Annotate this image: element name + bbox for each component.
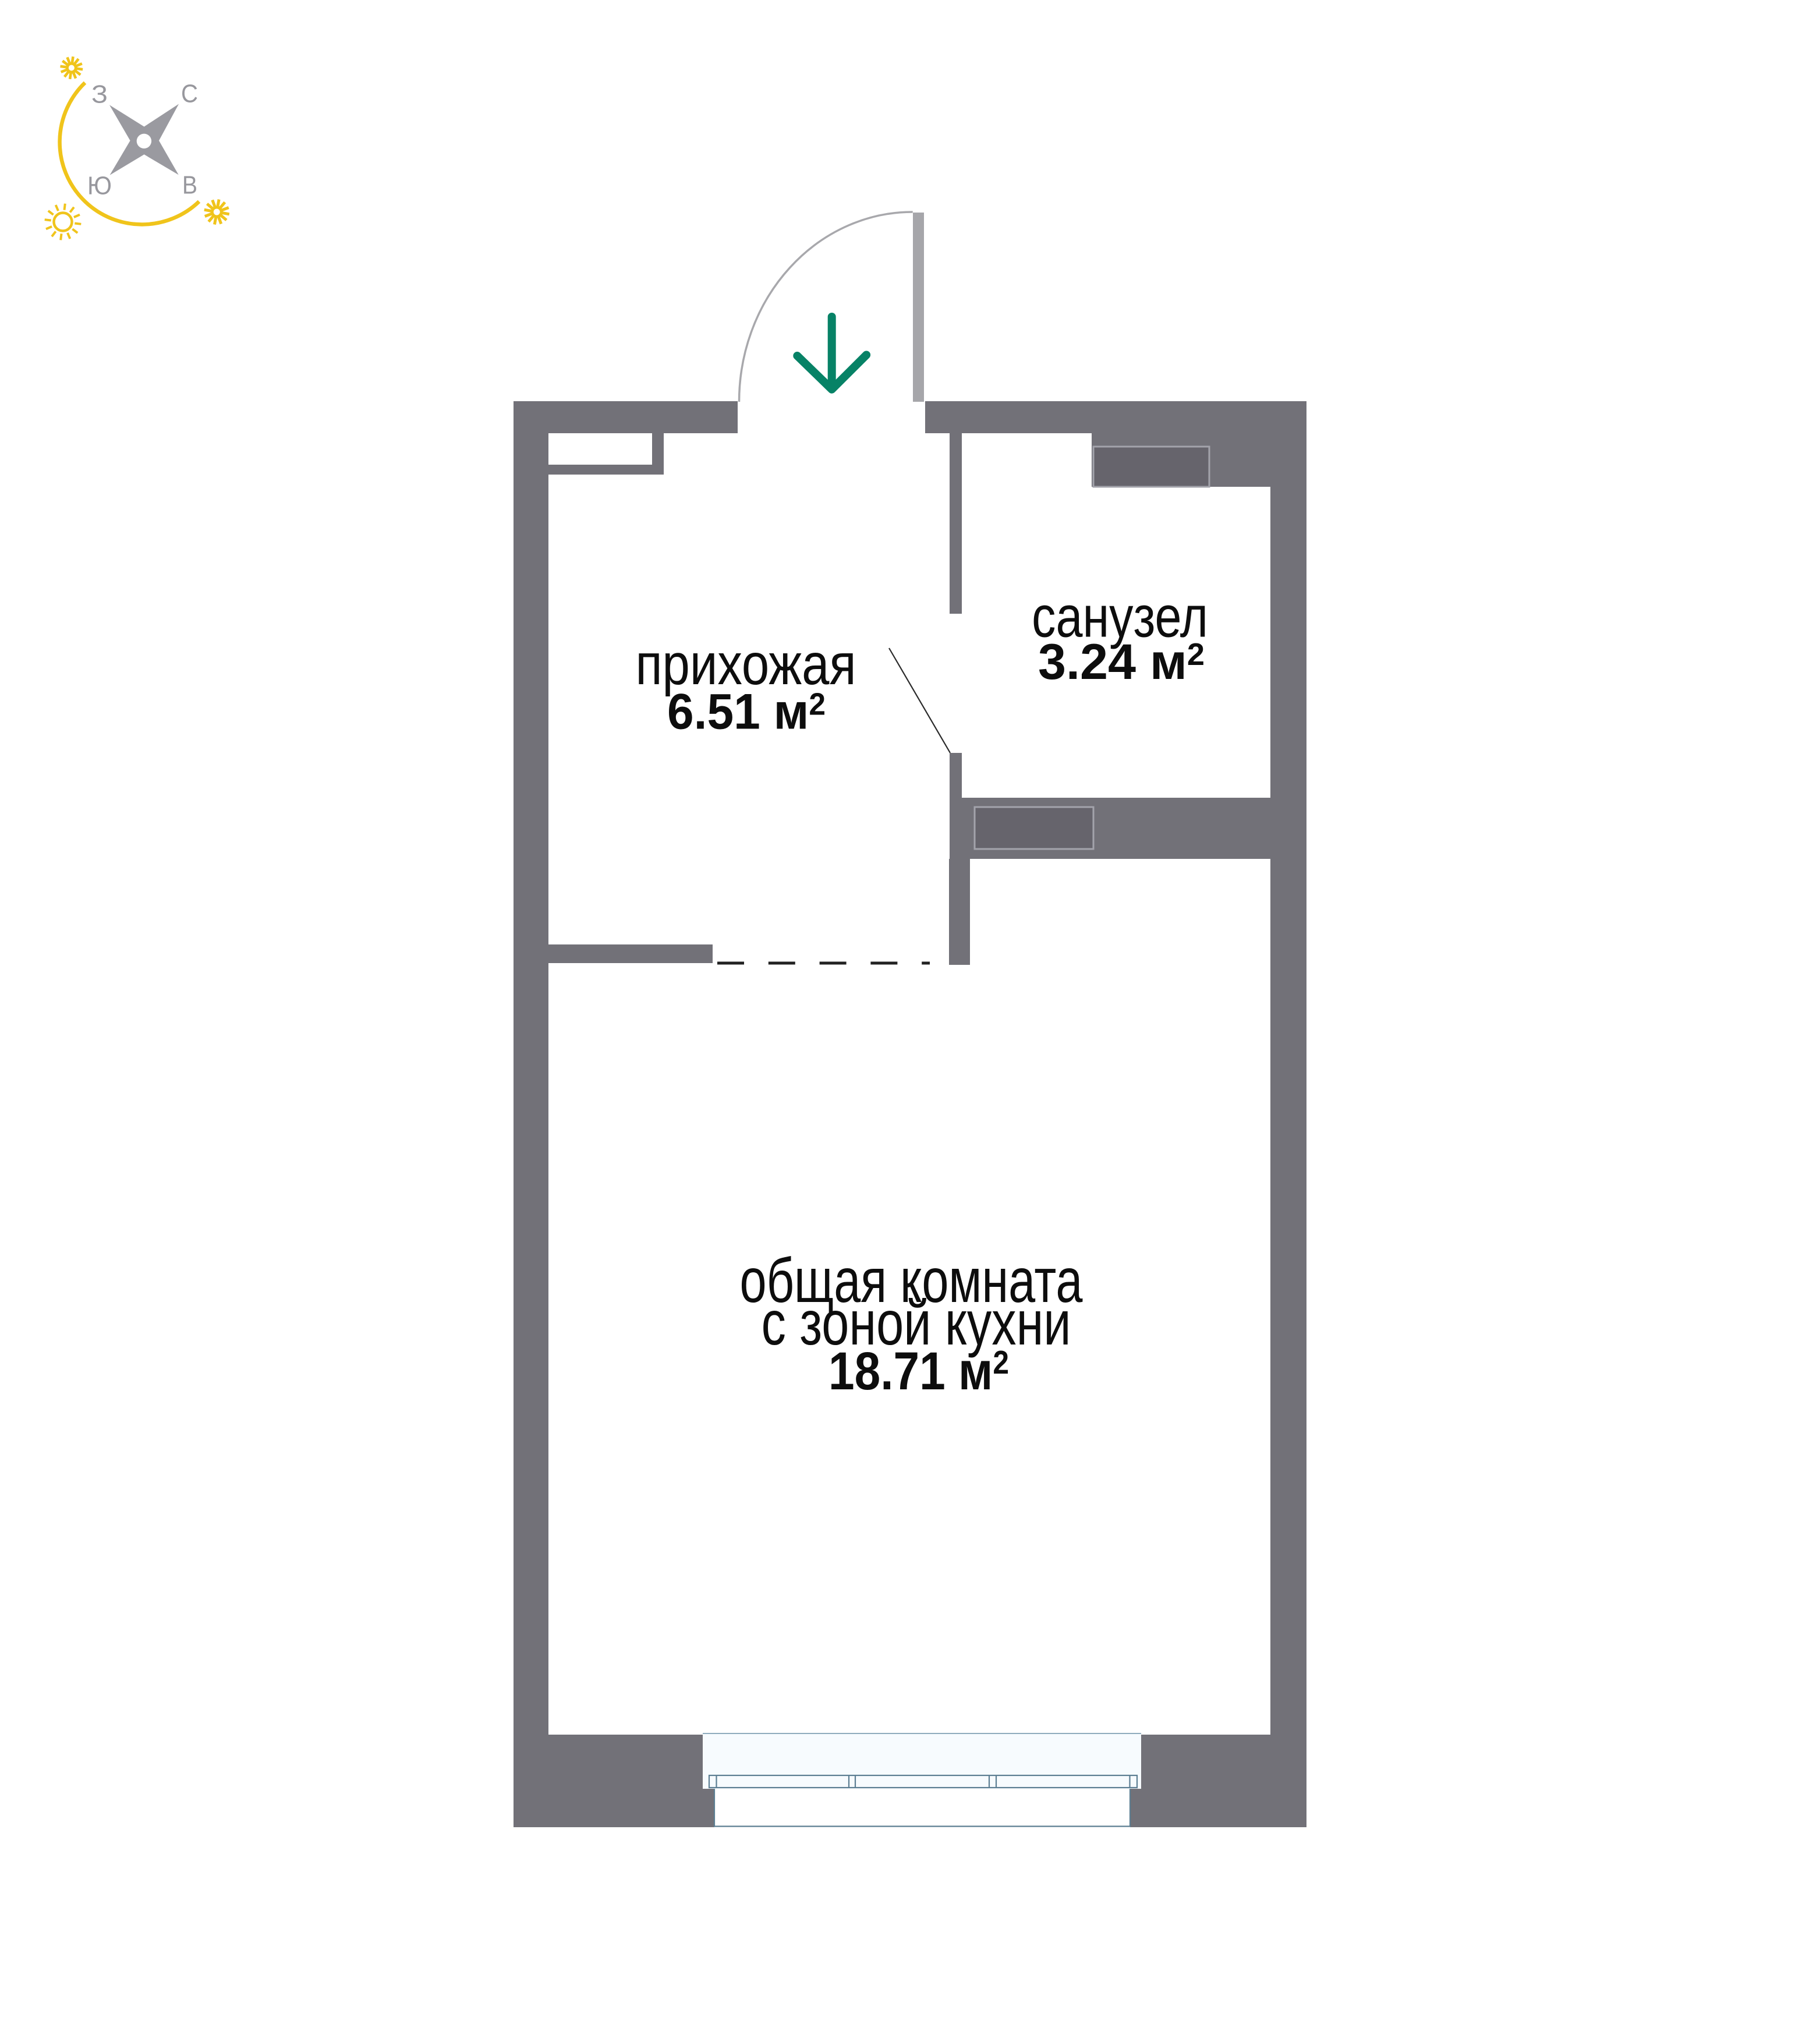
svg-text:18.71 м2: 18.71 м2 — [828, 1342, 1009, 1401]
svg-text:6.51 м2: 6.51 м2 — [667, 684, 826, 740]
svg-text:Ю: Ю — [87, 172, 112, 200]
svg-text:З: З — [91, 80, 108, 109]
svg-text:В: В — [182, 171, 197, 200]
svg-text:С: С — [181, 79, 198, 108]
svg-text:3.24 м2: 3.24 м2 — [1038, 634, 1205, 690]
